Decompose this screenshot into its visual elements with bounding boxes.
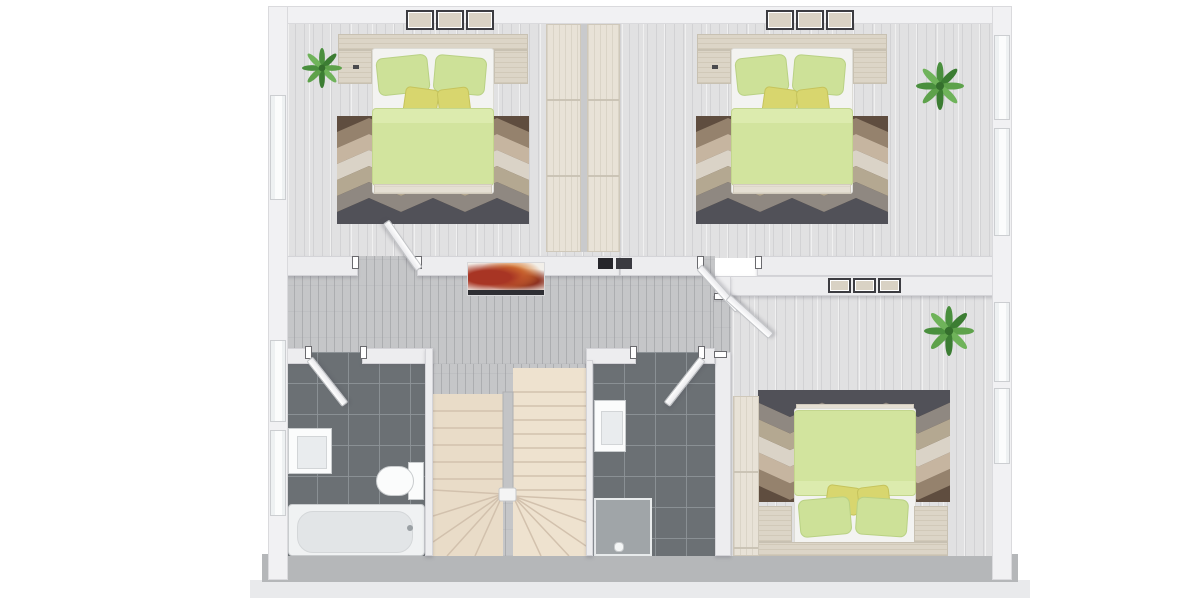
sink-basin [601,411,623,445]
window [270,430,286,516]
wardrobe [587,24,620,252]
nightstand [494,50,528,84]
bed-pillow [855,496,910,538]
potted-plant [302,48,342,88]
nightstand [914,506,948,542]
picture-frame [766,10,794,30]
potted-plant [924,306,974,356]
window [994,302,1010,382]
toilet-bowl [376,466,414,496]
nightstand [853,50,887,84]
wall-bath-middle-west [586,360,593,556]
nightstand [338,50,372,84]
picture-frame [436,10,464,30]
bed-pillow [797,496,852,538]
door-jamb [360,346,367,359]
picture-frame [878,278,901,293]
picture-frame [796,10,824,30]
dark-wall-panel [616,258,632,269]
shower [594,498,652,556]
abstract-artwork [467,262,545,296]
wall-bedroom3-west [715,352,731,556]
wall-hall-north [757,256,994,276]
picture-frame [406,10,434,30]
wall-bath-left-east [425,348,433,556]
staircase [433,364,586,556]
window [270,340,286,422]
door-jamb [714,351,727,358]
wall-hall-north [286,256,358,276]
picture-frame [828,278,851,293]
wall-bath-left-north [362,348,433,364]
door-jamb [630,346,637,359]
headboard-shelf [758,542,948,556]
shower-head [614,542,624,552]
potted-plant [916,62,964,110]
picture-frame [466,10,494,30]
window [994,35,1010,120]
bathtub [288,504,425,556]
floor-plan-scene [0,0,1200,600]
sink-basin [297,436,327,469]
vanity-sink [594,400,626,452]
picture-frame [826,10,854,30]
exterior-wall-top [268,6,1012,24]
nightstand [697,50,731,84]
vanity-sink [288,428,332,474]
wardrobe [733,396,759,556]
window [994,128,1010,236]
door-jamb [352,256,359,269]
bed-duvet [731,108,853,186]
bed-footboard [374,184,492,194]
bed-duvet [794,410,916,496]
nightstand-item [353,65,359,69]
bathtub-tap [407,525,413,531]
stairwell [433,364,586,556]
door-jamb [755,256,762,269]
nightstand [758,506,792,542]
nightstand-item [712,65,718,69]
window [994,388,1010,464]
dark-wall-panel [598,258,613,269]
bed-duvet [372,108,494,186]
wall-bath-middle-north [586,348,636,364]
bottom-wall-face [262,554,1018,582]
bathtub-basin [297,511,413,553]
wardrobe [546,24,581,252]
picture-frame [853,278,876,293]
window [270,95,286,200]
wall-hall-north [620,256,702,276]
bed-footboard [733,184,851,194]
ground-slab [250,580,1030,598]
